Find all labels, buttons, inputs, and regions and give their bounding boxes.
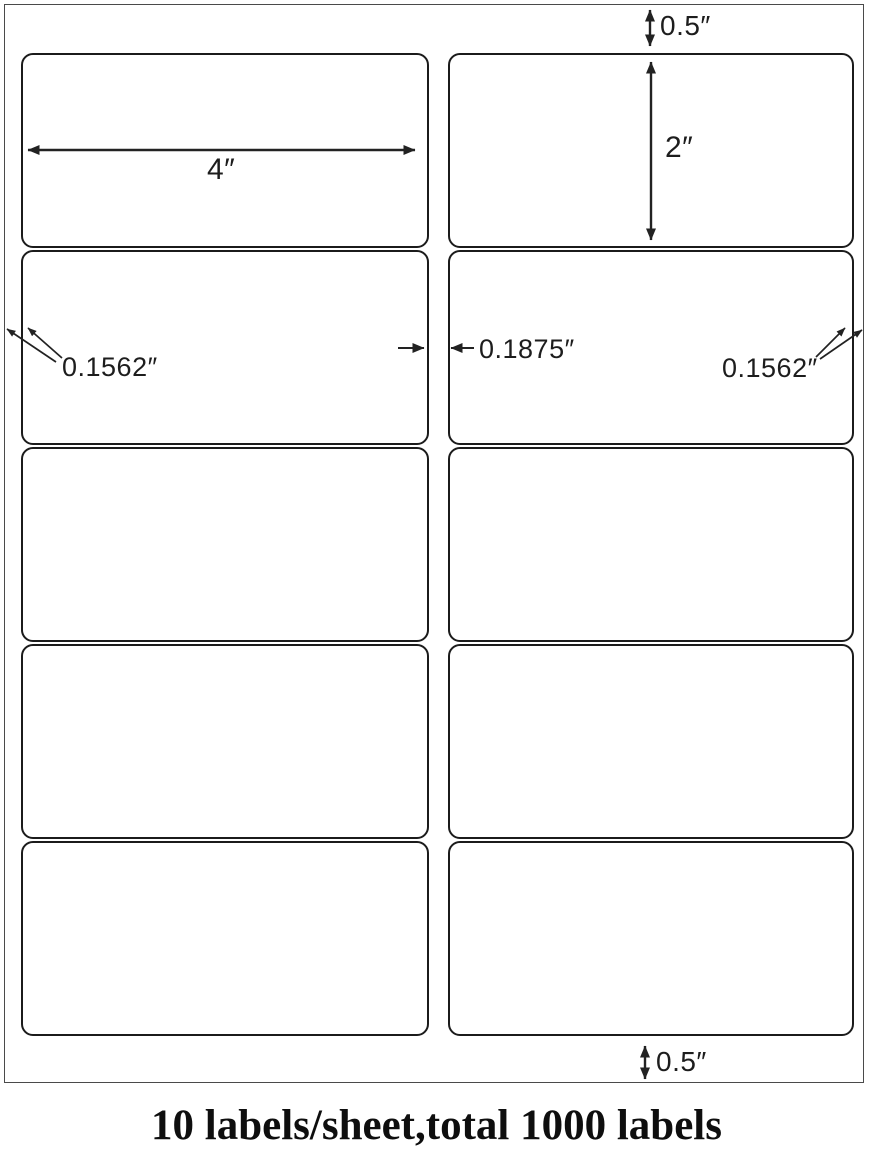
left-margin-label: 0.1562″	[62, 352, 158, 383]
label-height-label: 2″	[665, 131, 693, 165]
column-gap-label: 0.1875″	[479, 334, 575, 365]
label-cell	[21, 250, 429, 445]
label-sheet-diagram: 0.5″ 2″ 4″ 0.1562″ 0.1875″ 0.1562″ 0.5″ …	[0, 0, 873, 1159]
top-margin-label: 0.5″	[660, 10, 711, 42]
label-cell	[21, 644, 429, 839]
label-cell	[21, 447, 429, 642]
label-sheet	[4, 4, 864, 1083]
label-cell	[21, 53, 429, 248]
sheet-caption: 10 labels/sheet,total 1000 labels	[0, 1101, 873, 1150]
label-cell	[448, 53, 854, 248]
label-cell	[448, 644, 854, 839]
label-cell	[448, 841, 854, 1036]
label-cell	[448, 447, 854, 642]
bottom-margin-label: 0.5″	[656, 1046, 707, 1078]
right-margin-label: 0.1562″	[722, 353, 818, 384]
label-cell	[21, 841, 429, 1036]
label-width-label: 4″	[207, 153, 235, 187]
